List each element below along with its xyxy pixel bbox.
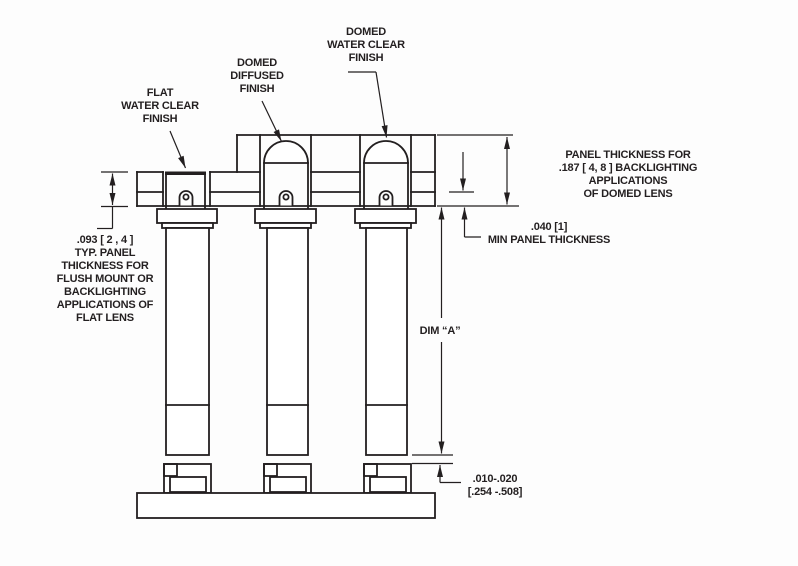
domed-diffused-lens-assembly [255, 141, 316, 455]
dim-min-panel-thickness [449, 152, 481, 237]
led-housing-middle [264, 464, 311, 493]
led-housing-right [364, 464, 411, 493]
led-housing-left [164, 464, 211, 493]
dim-a-label: DIM “A” [418, 325, 463, 338]
led-tip [380, 191, 393, 205]
flat-lens-flange [157, 209, 217, 223]
flat-lens-face [165, 172, 206, 176]
flat-lens-assembly [157, 172, 217, 456]
domed-water-clear-lens-label: DOMED WATER CLEAR FINISH [327, 26, 405, 65]
water-clear-lens-body [366, 228, 407, 455]
flat-lens-leader [170, 131, 186, 168]
led-tip [280, 191, 293, 205]
water-clear-lens-flange [355, 209, 416, 223]
min-panel-thickness-note: .040 [1] MIN PANEL THICKNESS [488, 221, 610, 247]
water-clear-dome [364, 141, 408, 163]
dim-domed-panel-thickness [437, 135, 519, 206]
circuit-board-base [137, 493, 435, 518]
domed-panel-thickness-note: PANEL THICKNESS FOR .187 [ 4, 8 ] BACKLI… [543, 149, 713, 201]
water-clear-lens-leader [376, 72, 387, 138]
thick-panel-section [237, 135, 435, 206]
domed-water-clear-lens-assembly [355, 141, 416, 455]
diffused-dome [264, 141, 308, 163]
led-tip [180, 191, 193, 205]
dim-flat-panel-thickness [97, 172, 128, 229]
tip-gap-note: .010-.020 [.254 -.508] [468, 473, 522, 499]
flat-lens-body [166, 228, 209, 455]
dim-tip-gap [412, 455, 461, 483]
diffused-lens-body [267, 228, 308, 455]
flat-panel-thickness-note: .093 [ 2 , 4 ] TYP. PANEL THICKNESS FOR … [57, 234, 154, 325]
flat-lens-label: FLAT WATER CLEAR FINISH [121, 87, 199, 126]
domed-diffused-lens-label: DOMED DIFFUSED FINISH [230, 57, 283, 96]
diffused-lens-flange [255, 209, 316, 223]
technical-drawing-canvas: FLAT WATER CLEAR FINISH DOMED DIFFUSED F… [0, 0, 798, 566]
